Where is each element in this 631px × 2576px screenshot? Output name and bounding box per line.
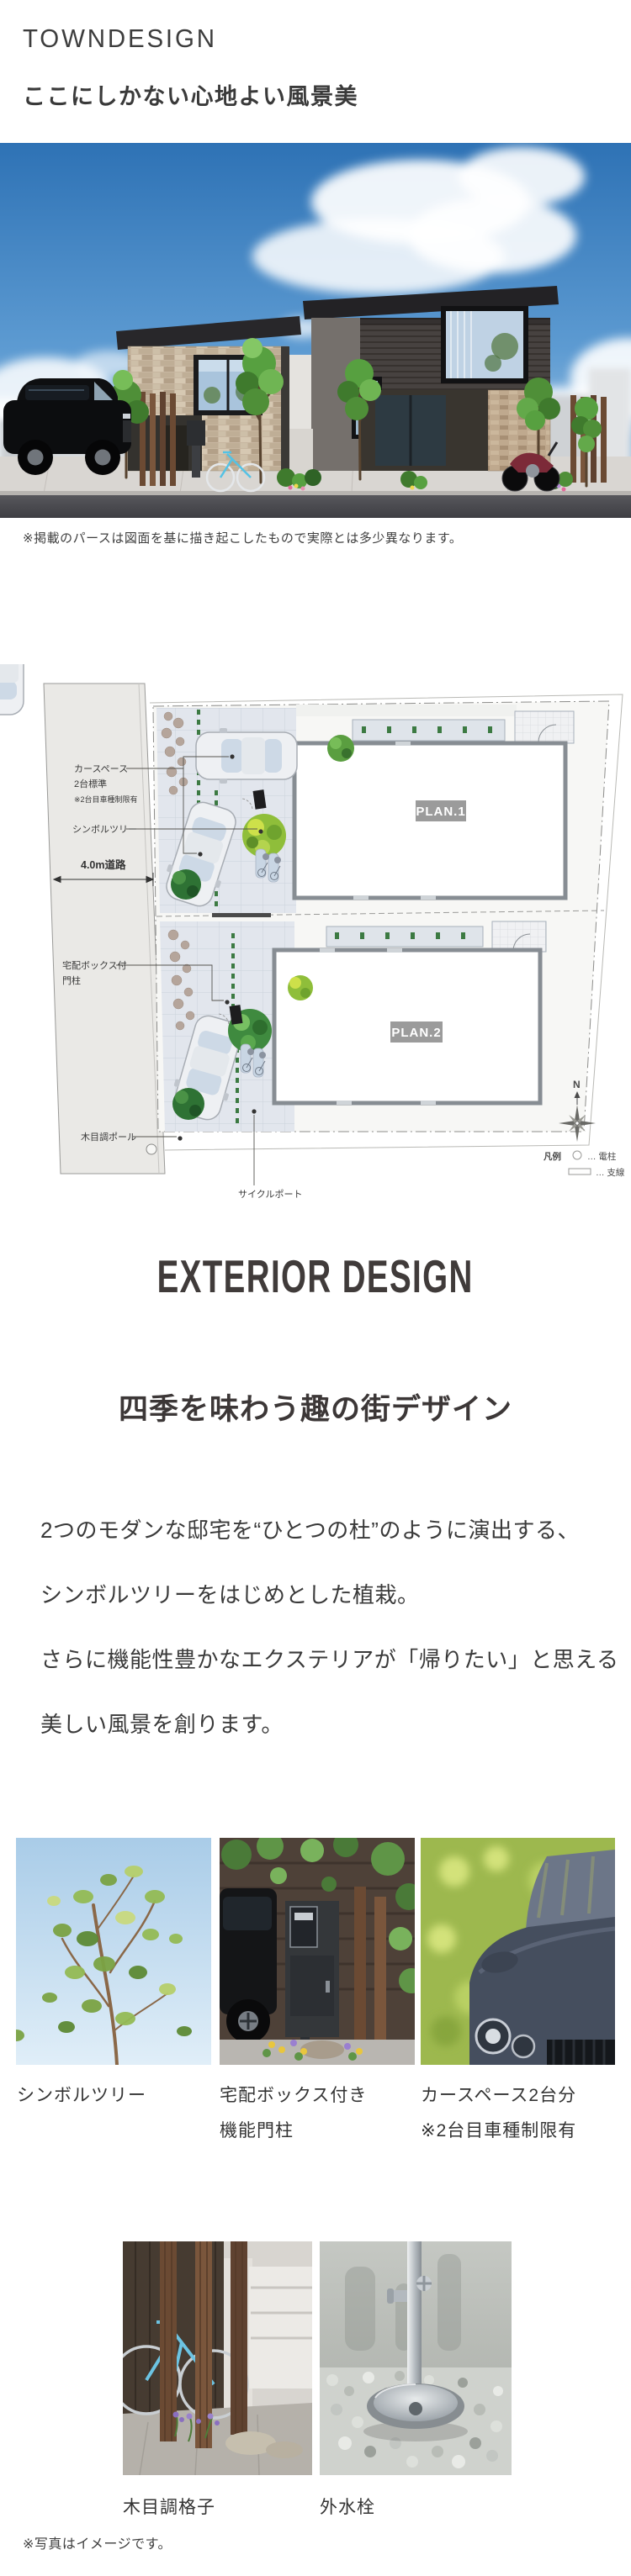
legend-pole-icon bbox=[573, 1151, 581, 1159]
exterior-design-subheading: 四季を味わう趣の街デザイン bbox=[0, 1386, 631, 1428]
legend-pole-label: … 電柱 bbox=[587, 1151, 617, 1162]
photo-delivery-box-post bbox=[220, 1838, 415, 2065]
exterior-design-heading: EXTERIOR DESIGN bbox=[0, 1249, 631, 1303]
caption-wood-lattice: 木目調格子 bbox=[123, 2490, 215, 2526]
paragraph-line: 2つのモダンな邸宅を“ひとつの杜”のように演出する、 bbox=[40, 1498, 618, 1563]
paragraph-line: シンボルツリーをはじめとした植栽。 bbox=[40, 1563, 618, 1628]
utility-pole-marker bbox=[146, 1144, 156, 1154]
caption-symbol-tree: シンボルツリー bbox=[17, 2078, 146, 2114]
photo-symbol-tree bbox=[16, 1838, 211, 2065]
car-1 bbox=[196, 728, 297, 784]
wood-pole-label: 木目調ポール bbox=[81, 1131, 136, 1143]
carspace-label-line1: カースペース bbox=[74, 763, 128, 774]
street bbox=[0, 495, 631, 518]
town-design-page: TOWNDESIGN ここにしかない心地よい風景美 bbox=[0, 0, 631, 2576]
symbol-tree-label: シンボルツリー bbox=[72, 824, 137, 835]
carspace-note: ※2台目車種制限有 bbox=[74, 794, 138, 804]
exterior-design-paragraph: 2つのモダンな邸宅を“ひとつの杜”のように演出する、 シンボルツリーをはじめとし… bbox=[40, 1498, 618, 1757]
photo-disclaimer: ※写真はイメージです。 bbox=[23, 2532, 172, 2552]
road-width-label: 4.0m道路 bbox=[81, 858, 126, 871]
cycle-port-label: サイクルポート bbox=[238, 1189, 302, 1200]
paragraph-line: 美しい風景を創ります。 bbox=[40, 1692, 618, 1757]
caption-outdoor-faucet: 外水栓 bbox=[320, 2490, 375, 2526]
legend-wire-label: … 支線 bbox=[596, 1167, 625, 1178]
paragraph-line: さらに機能性豊かなエクステリアが「帰りたい」と思える bbox=[40, 1628, 618, 1692]
caption-delivery-box: 宅配ボックス付き 機能門柱 bbox=[220, 2078, 367, 2149]
site-plan-drawing: PLAN.1 PLAN.2 bbox=[0, 664, 631, 1236]
carspace-label-line2: 2台標準 bbox=[74, 778, 107, 789]
site-plan-figure: PLAN.1 PLAN.2 bbox=[0, 664, 631, 1236]
photo-wood-lattice bbox=[123, 2241, 312, 2475]
plan1-label: PLAN.1 bbox=[416, 805, 465, 819]
caption-car-space: カースペース2台分 ※2台目車種制限有 bbox=[421, 2078, 576, 2149]
exterior-rendering-image bbox=[0, 143, 631, 518]
photo-car-space bbox=[421, 1838, 615, 2065]
delivery-label-line1: 宅配ボックス付 bbox=[62, 959, 127, 971]
page-title: TOWNDESIGN bbox=[23, 24, 217, 54]
legend-title: 凡例 bbox=[544, 1151, 561, 1162]
compass-north-label: N bbox=[573, 1079, 581, 1090]
delivery-label-line2: 門柱 bbox=[62, 974, 81, 986]
plan2-label: PLAN.2 bbox=[391, 1026, 441, 1040]
road-area bbox=[44, 684, 165, 1174]
photo-outdoor-faucet bbox=[320, 2241, 512, 2475]
legend-wire-icon bbox=[569, 1169, 591, 1175]
plan-legend: 凡例 … 電柱 … 支線 bbox=[544, 1151, 625, 1178]
black-car bbox=[220, 1888, 277, 2043]
exterior-rendering-art bbox=[0, 143, 631, 518]
page-subtitle: ここにしかない心地よい風景美 bbox=[23, 78, 358, 111]
rendering-disclaimer: ※掲載のパースは図面を基に描き起こしたもので実際とは多少異なります。 bbox=[23, 529, 462, 546]
